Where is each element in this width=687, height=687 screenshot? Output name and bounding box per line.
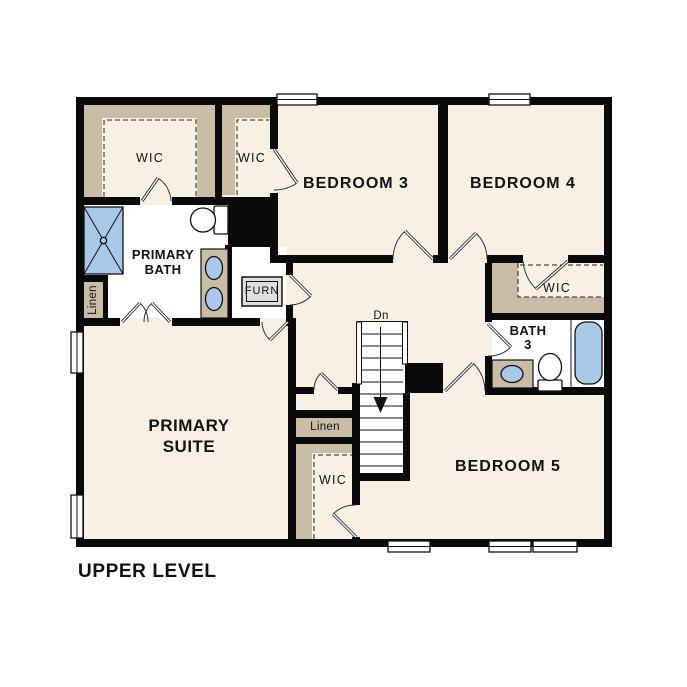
shower-icon <box>84 207 123 274</box>
toilet-icon <box>538 354 562 392</box>
bathtub-icon <box>571 320 604 387</box>
toilet-icon <box>191 206 229 234</box>
window <box>489 94 530 105</box>
stair-rail-right <box>403 322 408 364</box>
room-label-wic-primary: WIC <box>136 151 164 165</box>
chase <box>405 363 443 393</box>
stair-rail-left <box>357 322 362 384</box>
room-label-bath3: BATH 3 <box>510 324 547 352</box>
vanity-icon <box>492 360 533 388</box>
double-vanity-icon <box>201 249 228 318</box>
chase <box>228 202 270 247</box>
primary-suite-line1: PRIMARY <box>148 415 229 436</box>
room-label-linen-bath: Linen <box>87 285 99 315</box>
stairs-down-label: Dn <box>373 310 388 322</box>
room-label-furnace: FURN <box>245 285 280 297</box>
room-label-primary-bath: PRIMARY BATH <box>132 247 194 277</box>
primary-bath-line1: PRIMARY <box>132 247 194 262</box>
room-label-wic-bed5: WIC <box>319 473 347 487</box>
page-title: UPPER LEVEL <box>78 561 217 583</box>
floor-plan: WIC WIC BEDROOM 3 BEDROOM 4 PRIMARY BATH… <box>0 0 687 687</box>
window <box>71 332 83 373</box>
window <box>71 495 83 538</box>
window <box>533 541 577 552</box>
window <box>277 94 317 105</box>
room-label-wic-bed3: WIC <box>238 151 266 165</box>
room-label-bedroom3: BEDROOM 3 <box>303 175 409 193</box>
window <box>388 541 430 552</box>
floor-plan-drawing <box>0 0 687 687</box>
room-label-linen-hall: Linen <box>310 421 340 433</box>
room-label-bedroom4: BEDROOM 4 <box>470 175 576 193</box>
room-label-wic-bed4: WIC <box>543 281 571 295</box>
room-label-primary-suite: PRIMARY SUITE <box>148 415 229 457</box>
primary-suite-line2: SUITE <box>148 436 229 457</box>
primary-bath-line2: BATH <box>132 262 194 277</box>
room-label-bedroom5: BEDROOM 5 <box>455 458 561 476</box>
bath3-line1: BATH <box>510 324 547 338</box>
bath3-line2: 3 <box>510 338 547 352</box>
window <box>489 541 531 552</box>
